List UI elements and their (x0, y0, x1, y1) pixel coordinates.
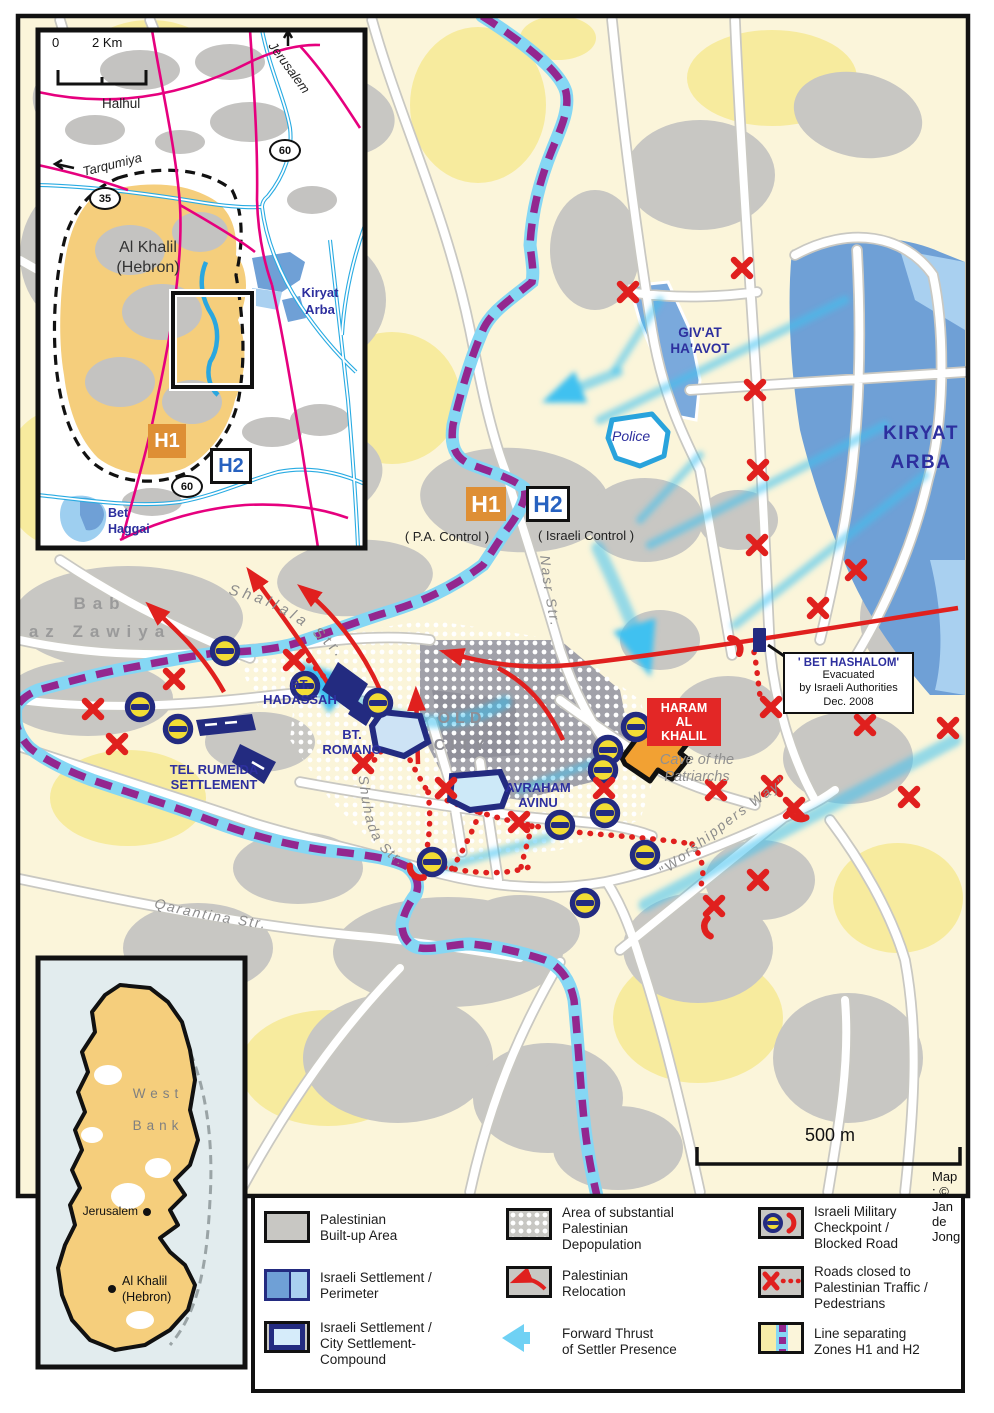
thrust-arrow-icon (500, 1318, 554, 1358)
westbank-jerusalem-label: Jerusalem (58, 1205, 138, 1219)
tel-rumeida-label: TEL RUMEIDA SETTLEMENT (170, 763, 259, 793)
inset-scale-zero: 0 (52, 36, 59, 51)
old-city-label: OLD CITY (434, 705, 490, 759)
westbank-alkhalil-label: Al Khalil (Hebron) (122, 1274, 171, 1305)
legend-swatch-thrust (500, 1318, 546, 1350)
bab-az-zawiya-label: Bab az Zawiya (29, 590, 171, 646)
bet-hashalom-callout: ' BET HASHALOM' Evacuated by Israeli Aut… (783, 652, 914, 714)
h1h2-cyan-band (776, 1325, 788, 1351)
legend-label-depopulation: Area of substantial Palestinian Depopula… (562, 1205, 674, 1253)
h2-badge: H2 (526, 486, 570, 522)
legend-swatch-relocation (506, 1266, 552, 1298)
hebron-h1-h2-map: Shallala Str. Shuhada Str. Qarantina Str… (0, 0, 994, 1413)
legend-label-checkpoint: Israeli Military Checkpoint / Blocked Ro… (814, 1204, 898, 1252)
h1h2-purple-dashes (779, 1325, 786, 1351)
legend-swatch-checkpoint (758, 1207, 804, 1239)
legend-swatch-israeli-settlement (264, 1269, 310, 1301)
inset-scale-km: 2 Km (92, 36, 122, 51)
avraham-avinu-label: AVRAHAM AVINU (505, 781, 570, 811)
legend-label-thrust: Forward Thrust of Settler Presence (562, 1326, 677, 1358)
legend-swatch-h1h2-line (758, 1322, 804, 1354)
checkpoint-icon (761, 1210, 801, 1236)
h1-badge: H1 (466, 487, 506, 521)
legend-label-relocation: Palestinian Relocation (562, 1268, 628, 1300)
inset-h2-badge: H2 (210, 448, 252, 484)
legend-label-israeli-settlement: Israeli Settlement / Perimeter (320, 1270, 432, 1302)
haram-al-khalil-badge: HARAM AL KHALIL (647, 698, 721, 746)
west-bank-label: West Bank (133, 1078, 184, 1143)
legend-swatch-depopulation (506, 1208, 552, 1240)
legend-label-compound: Israeli Settlement / City Settlement- Co… (320, 1320, 432, 1368)
route-60-badge: 60 (269, 139, 301, 162)
legend-compound-inner (269, 1324, 305, 1350)
bt-romano-label: BT. ROMANO (322, 728, 381, 758)
h1-control-label: ( P.A. Control ) (405, 530, 489, 545)
legend-swatch-palestinian-area (264, 1211, 310, 1243)
inset-alkhalil-label: Al Khalil (Hebron) (116, 238, 179, 278)
inset-h1-badge: H1 (148, 424, 186, 458)
givat-haavot-label: GIV'AT HA'AVOT (670, 325, 729, 356)
relocation-arrow-icon (509, 1269, 549, 1295)
scale-label: 500 m (805, 1125, 855, 1146)
legend-swatch-roads-closed (758, 1266, 804, 1298)
route-60b-badge: 60 (171, 475, 203, 498)
legend-label-h1h2-line: Line separating Zones H1 and H2 (814, 1326, 920, 1358)
kiryat-arba-label: KIRYAT ARBA (883, 420, 959, 477)
legend-label-palestinian-area: Palestinian Built-up Area (320, 1212, 397, 1244)
map-credit: Map : © Jan de Jong (932, 1170, 963, 1245)
h2-control-label: ( Israeli Control ) (538, 529, 634, 544)
halhul-label: Halhul (102, 96, 140, 112)
cave-of-patriarchs-label: Cave of the Patriarchs (660, 752, 734, 785)
westbank-inset (38, 958, 245, 1367)
alkhalil-dot (108, 1285, 116, 1293)
bt-hadassah-label: BT. HADASSAH (263, 678, 337, 708)
police-label: Police (612, 428, 650, 444)
jerusalem-dot (143, 1208, 151, 1216)
inset-bet-haggai-label: Bet Haggai (108, 505, 150, 538)
bet-hashalom-body: Evacuated by Israeli Authorities Dec. 20… (787, 669, 910, 709)
route-35-badge: 35 (89, 187, 121, 210)
bet-hashalom-title: ' BET HASHALOM' (787, 657, 910, 669)
legend-label-roads-closed: Roads closed to Palestinian Traffic / Pe… (814, 1264, 928, 1312)
legend-swatch-compound (264, 1321, 310, 1353)
roads-closed-icon (761, 1269, 801, 1295)
inset-kiryat-label: Kiryat Arba (302, 285, 339, 319)
